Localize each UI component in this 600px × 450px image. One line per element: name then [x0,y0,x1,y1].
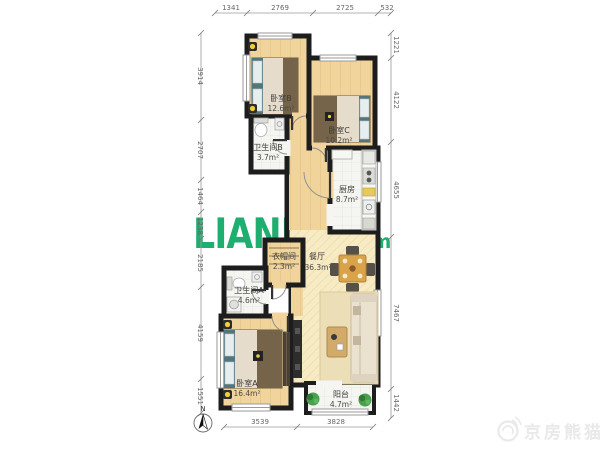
label-cloakroom-name: 衣帽间 [272,251,296,261]
sink-icon-bathroomA [252,272,262,282]
compass-north-label: N [200,405,205,413]
label-balcony-name: 阳台 [333,389,349,399]
label-cloakroom-area: 2.3m² [273,262,295,271]
dim-right-5: 1442 [392,394,400,412]
label-bedroomC-name: 卧室C [328,125,350,135]
dim-right-1: 1221 [392,36,400,54]
wardrobe-icon-bedroomA [283,332,290,386]
tv-cabinet-icon [293,320,302,378]
hallway-floor [289,150,328,230]
plant-icon [359,394,372,407]
label-bedroomA-area: 16.4m² [233,389,260,398]
dim-right-4: 7467 [392,304,400,322]
hallway-lower-floor [291,286,303,316]
label-bedroomC-area: 10.2m² [325,136,352,145]
label-bathroomB-area: 3.7m² [257,153,279,162]
dim-right-3: 4655 [392,181,400,199]
corner-watermark: 京房熊猫 [499,417,600,443]
dim-left-3: 1464 [196,187,204,205]
door-kitchen-opening [327,204,334,226]
lamp-icon [248,42,257,51]
dim-left-5: 2185 [196,254,204,272]
label-kitchen-area: 8.7m² [336,195,358,204]
dim-top-1: 1341 [222,4,240,12]
label-dining-name: 餐厅 [309,252,325,261]
dim-left-2: 2707 [196,141,204,159]
dim-bottom-1: 3539 [251,418,269,426]
dim-left-6: 4159 [196,324,204,342]
coffee-table-icon [327,327,347,357]
label-bathroomB-name: 卫生间B [253,142,283,152]
plant-icon [307,393,320,406]
dim-bottom-2: 3828 [327,418,345,426]
label-bedroomB-name: 卧室B [270,93,292,103]
label-kitchen-name: 厨房 [339,184,355,194]
window-bedroomA-bottom-icon [232,404,270,411]
dim-top-3: 2725 [336,4,354,12]
corner-watermark-icon [499,422,518,441]
corner-watermark-text: 京房熊猫 [524,422,600,443]
compass-needle-dark [199,414,204,429]
lamp-icon [248,104,257,113]
floorplan-page: LIANJIA 链家 .com [0,0,600,450]
dim-left-4: 1238 [196,217,204,235]
label-bathroomA-name: 卫生间A [234,285,264,295]
door-cloakroom [271,282,286,300]
dim-top-4: 532 [380,4,393,12]
label-bedroomB-area: 12.6m² [267,104,294,113]
dim-left-1: 3914 [196,67,204,85]
sofa-icon [351,294,377,382]
window-bedroomB-top-icon [258,33,292,39]
window-balcony-bottom-icon [312,409,368,415]
dim-top-2: 2769 [271,4,289,12]
sink-icon-bathroomB [275,118,284,130]
label-dining-area: 36.3m² [304,263,331,272]
dim-left-7: 1551 [196,387,204,405]
label-balcony-area: 4.7m² [330,400,352,409]
window-bedroomA-left-icon [217,332,224,388]
floorplan-svg: LIANJIA 链家 .com [0,0,600,450]
compass: N [194,405,212,432]
door-balcony-opening [316,381,342,388]
dim-right-2: 4122 [392,91,400,109]
lamp-icon [223,390,232,399]
compass-needle-light [203,414,208,429]
toilet-icon-bathroomB [254,118,268,137]
label-bathroomA-area: 4.6m² [238,296,260,305]
window-bedroomC-top-icon [320,55,356,61]
label-bedroomA-name: 卧室A [236,378,258,388]
lamp-icon [223,320,232,329]
window-bedroomB-left-icon [243,55,250,101]
